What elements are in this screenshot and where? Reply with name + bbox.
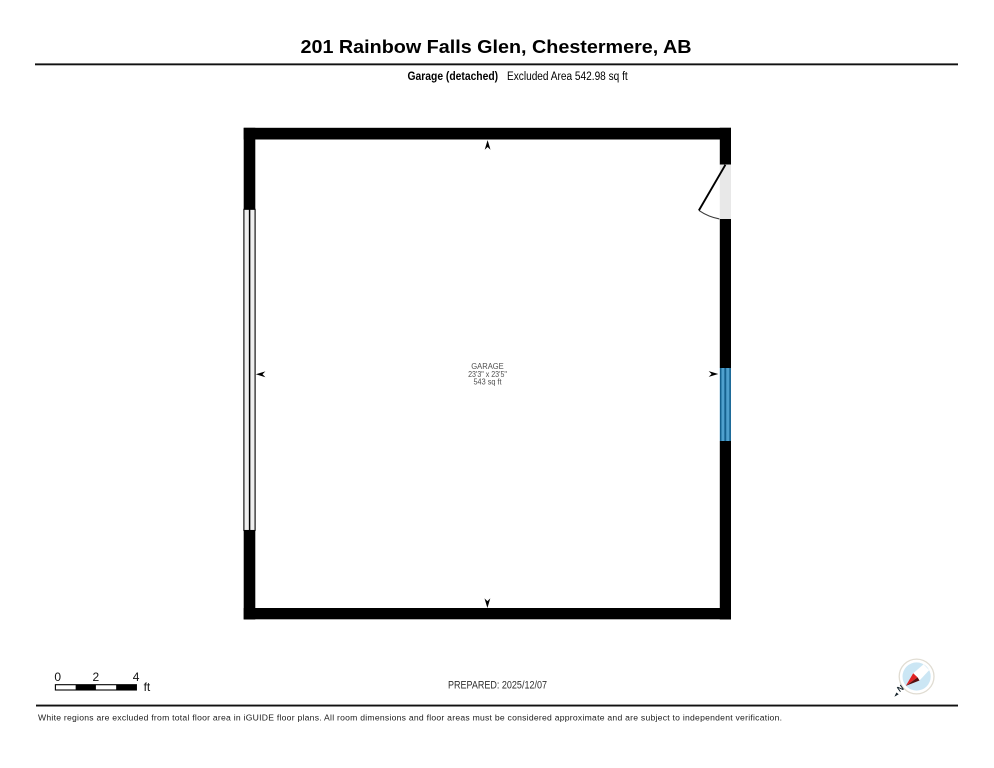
svg-text:0: 0 — [54, 670, 61, 684]
svg-text:White regions are excluded fro: White regions are excluded from total fl… — [38, 713, 782, 723]
svg-text:2: 2 — [93, 670, 100, 684]
svg-text:PREPARED: 2025/12/07: PREPARED: 2025/12/07 — [448, 680, 547, 692]
svg-text:4: 4 — [133, 670, 140, 684]
svg-text:201 Rainbow Falls Glen, Cheste: 201 Rainbow Falls Glen, Chestermere, AB — [301, 36, 692, 57]
svg-text:Excluded Area 542.98 sq ft: Excluded Area 542.98 sq ft — [507, 71, 628, 83]
svg-text:543 sq ft: 543 sq ft — [474, 377, 503, 386]
svg-text:Garage (detached): Garage (detached) — [408, 71, 499, 83]
svg-text:ft: ft — [144, 680, 151, 694]
